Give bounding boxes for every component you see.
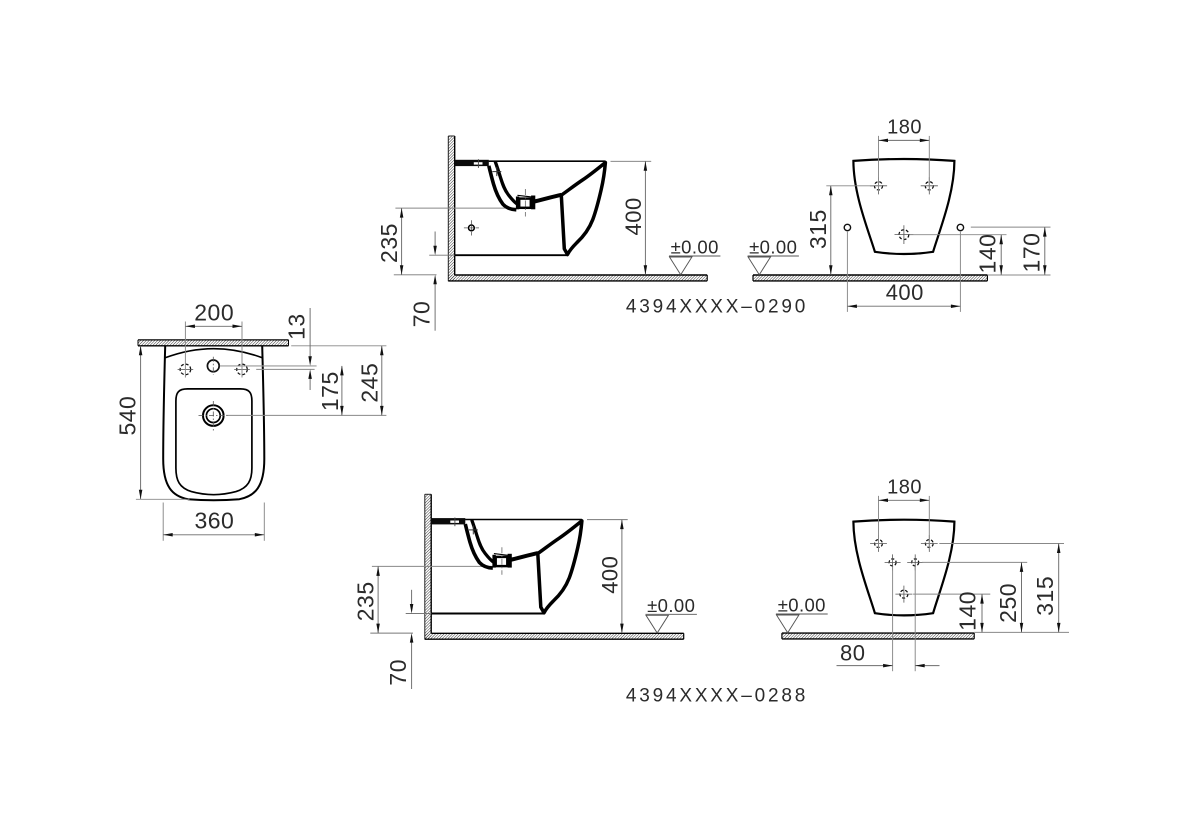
svg-text:70: 70 [409, 301, 435, 328]
svg-text:315: 315 [1032, 576, 1058, 616]
svg-text:140: 140 [975, 234, 1001, 274]
svg-text:4394XXXX–0288: 4394XXXX–0288 [626, 686, 808, 707]
svg-text:140: 140 [954, 591, 980, 631]
svg-text:180: 180 [887, 117, 922, 139]
svg-text:400: 400 [597, 556, 622, 594]
svg-text:4394XXXX–0290: 4394XXXX–0290 [626, 297, 808, 318]
svg-text:170: 170 [1018, 233, 1044, 273]
svg-text:70: 70 [385, 659, 411, 686]
svg-text:±0.00: ±0.00 [749, 237, 797, 258]
svg-text:235: 235 [376, 223, 402, 263]
svg-text:360: 360 [194, 508, 234, 534]
svg-text:315: 315 [805, 209, 831, 249]
svg-text:80: 80 [840, 641, 865, 666]
svg-text:13: 13 [284, 313, 310, 340]
svg-text:±0.00: ±0.00 [647, 595, 695, 616]
svg-text:200: 200 [194, 300, 234, 326]
svg-text:250: 250 [995, 583, 1021, 623]
svg-text:175: 175 [317, 371, 343, 411]
svg-text:400: 400 [621, 197, 646, 235]
svg-text:180: 180 [887, 477, 922, 499]
svg-text:245: 245 [357, 363, 383, 403]
svg-text:400: 400 [886, 280, 924, 305]
svg-text:235: 235 [353, 581, 379, 621]
svg-text:±0.00: ±0.00 [778, 595, 826, 616]
svg-text:540: 540 [115, 396, 141, 436]
svg-text:±0.00: ±0.00 [671, 237, 719, 258]
